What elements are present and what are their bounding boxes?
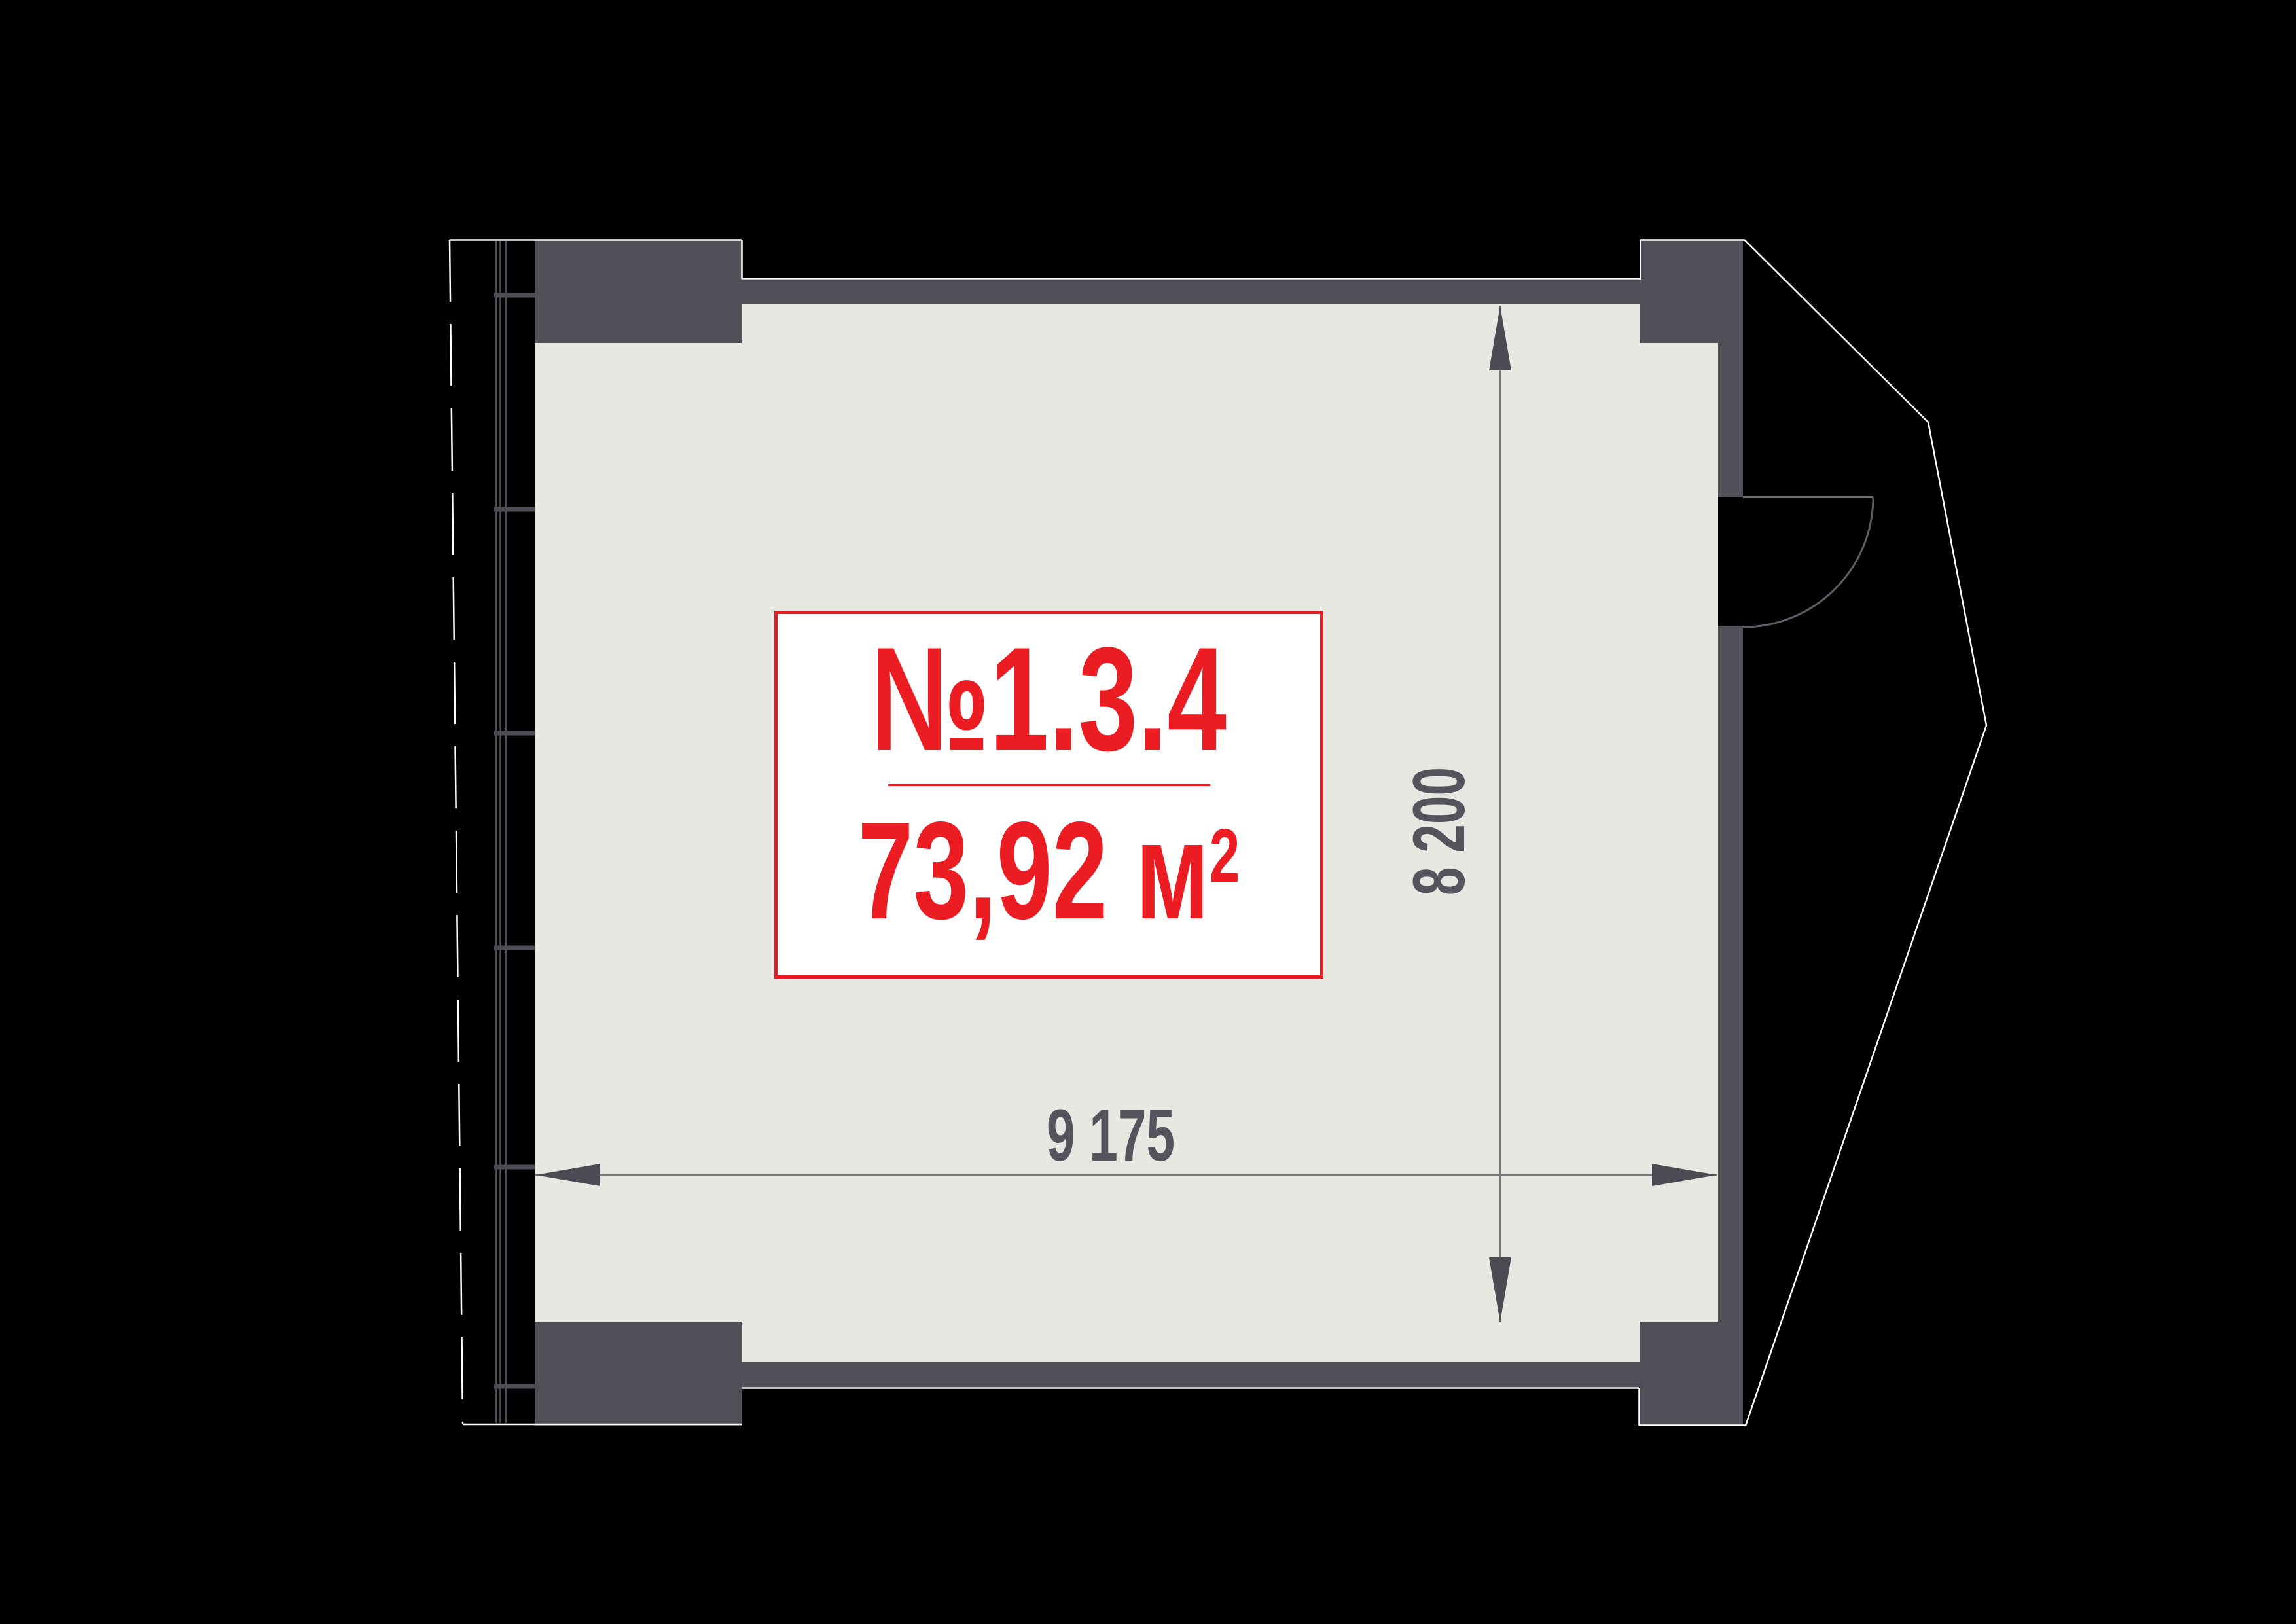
dimension-width-label: 9 175 bbox=[1047, 1094, 1175, 1176]
facade-outer-dashed-line bbox=[450, 240, 463, 1424]
arrow-down-icon bbox=[1489, 1257, 1511, 1322]
unit-number: №1.3.4 bbox=[778, 625, 1320, 773]
door bbox=[1743, 497, 1873, 628]
dimension-height: 8 200 bbox=[1398, 306, 1511, 1322]
door-swing-arc bbox=[1743, 498, 1873, 627]
unit-area: 73,92 м2 bbox=[778, 801, 1320, 940]
unit-number-text: №1.3.4 bbox=[871, 625, 1227, 773]
dimension-width: 9 175 bbox=[535, 1094, 1717, 1186]
unit-label-divider bbox=[888, 784, 1210, 786]
unit-label-box[interactable]: №1.3.4 73,92 м2 bbox=[774, 611, 1323, 979]
arrow-right-icon bbox=[1652, 1164, 1717, 1186]
unit-area-text: 73,92 м2 bbox=[858, 801, 1240, 940]
site-boundary-line bbox=[1744, 240, 1986, 1426]
dimension-height-label: 8 200 bbox=[1398, 767, 1480, 895]
arrow-left-icon bbox=[535, 1164, 600, 1186]
unit-area-superscript: 2 bbox=[1210, 813, 1240, 898]
floorplan-canvas: 9 175 8 200 №1.3.4 73,92 м2 bbox=[0, 0, 2296, 1624]
arrow-up-icon bbox=[1489, 306, 1511, 370]
window-wall-left bbox=[450, 240, 535, 1424]
